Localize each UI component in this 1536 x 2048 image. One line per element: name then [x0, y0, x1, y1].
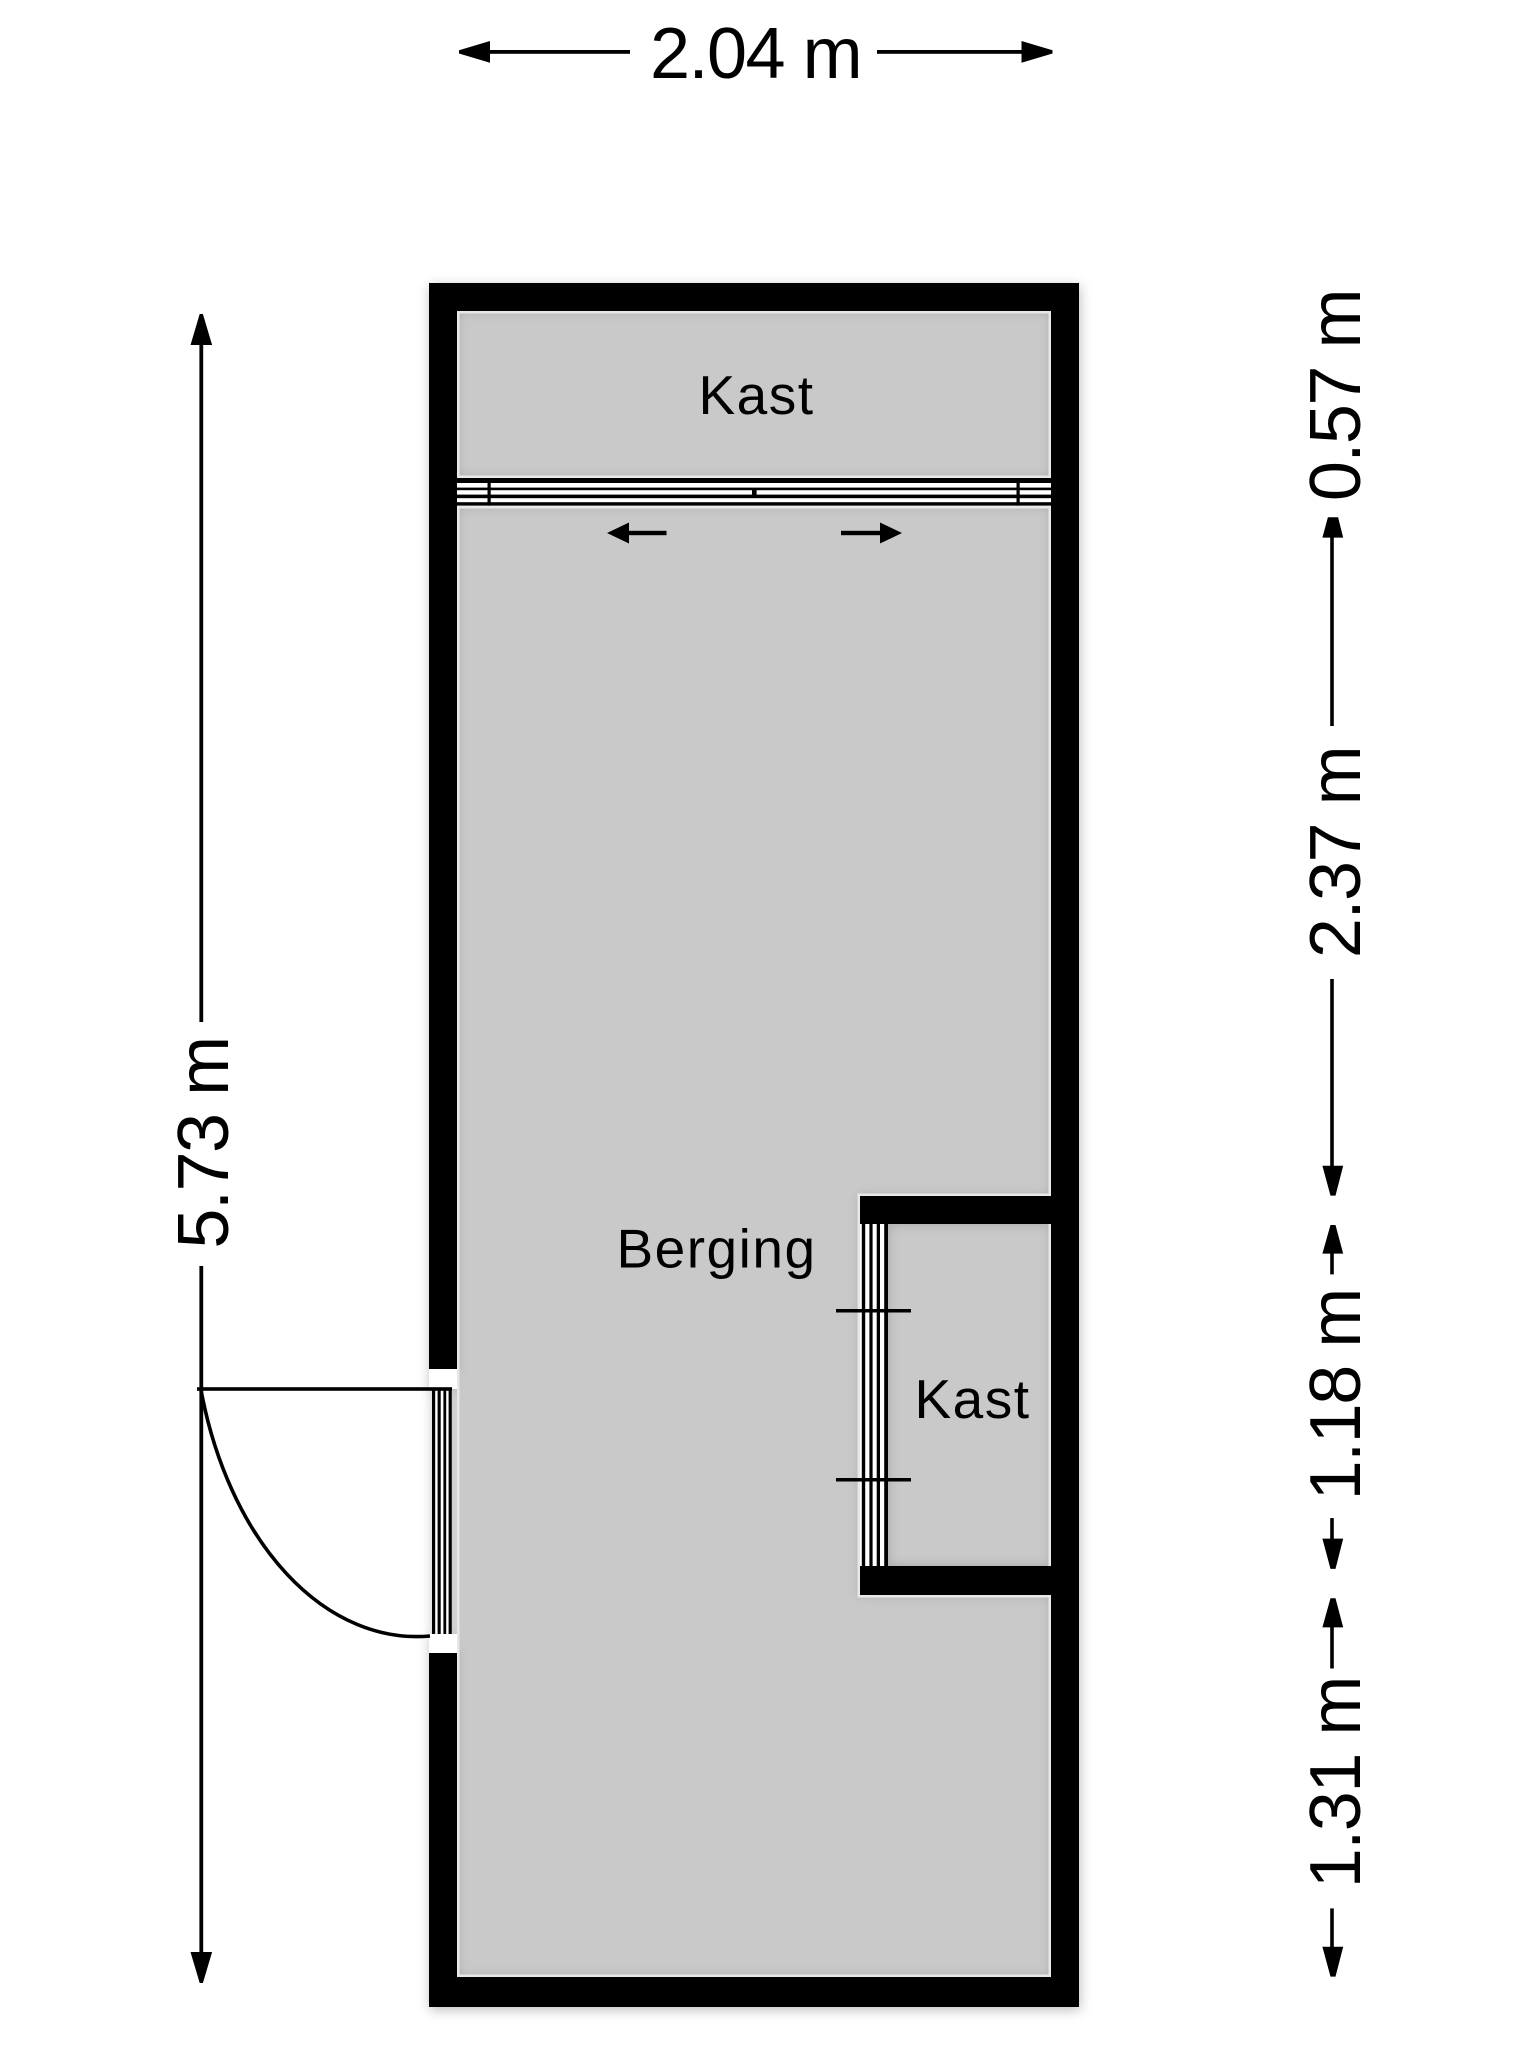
svg-text:Kast: Kast [698, 364, 814, 426]
svg-text:5.73 m: 5.73 m [164, 1037, 244, 1248]
svg-text:0.57 m: 0.57 m [1296, 290, 1376, 501]
svg-text:2.37 m: 2.37 m [1296, 747, 1376, 958]
svg-text:Berging: Berging [616, 1218, 816, 1280]
svg-text:1.18 m: 1.18 m [1296, 1289, 1376, 1500]
svg-text:2.04 m: 2.04 m [650, 14, 861, 94]
svg-text:Kast: Kast [914, 1368, 1030, 1430]
svg-text:1.31 m: 1.31 m [1296, 1677, 1376, 1888]
